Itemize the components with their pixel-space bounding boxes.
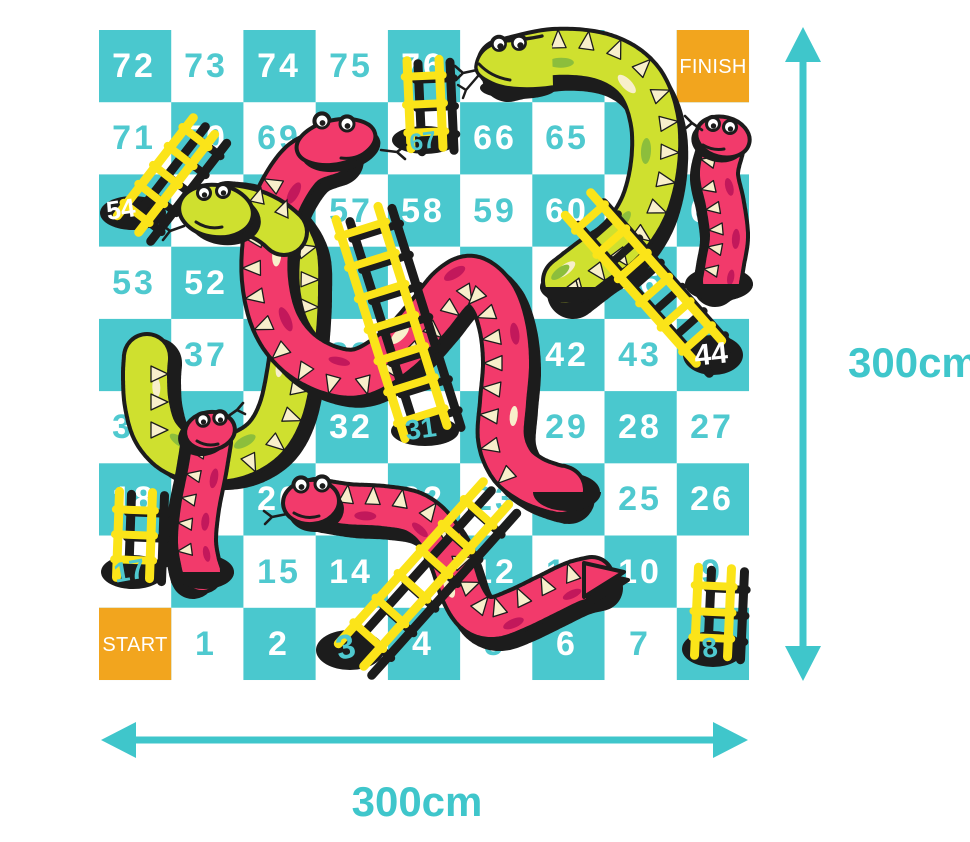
svg-text:54: 54: [104, 192, 137, 226]
svg-text:27: 27: [690, 408, 734, 446]
svg-text:28: 28: [618, 408, 662, 446]
svg-text:44: 44: [693, 336, 730, 372]
svg-text:25: 25: [618, 480, 662, 518]
svg-text:73: 73: [184, 47, 228, 85]
svg-text:14: 14: [329, 553, 373, 591]
svg-text:29: 29: [545, 408, 589, 446]
svg-text:2: 2: [268, 625, 290, 663]
svg-text:74: 74: [257, 47, 301, 85]
svg-text:15: 15: [257, 553, 301, 591]
svg-text:300cm: 300cm: [848, 339, 970, 386]
svg-text:67: 67: [408, 126, 438, 156]
svg-text:17: 17: [111, 553, 147, 589]
svg-text:7: 7: [629, 625, 651, 663]
svg-text:65: 65: [545, 119, 589, 157]
svg-text:58: 58: [401, 192, 445, 230]
svg-text:FINISH: FINISH: [679, 56, 746, 78]
svg-text:53: 53: [112, 264, 156, 302]
svg-text:71: 71: [112, 119, 156, 157]
svg-text:31: 31: [403, 411, 438, 446]
svg-text:1: 1: [195, 625, 217, 663]
svg-text:6: 6: [556, 625, 578, 663]
svg-text:START: START: [102, 634, 167, 656]
svg-text:52: 52: [184, 264, 228, 302]
svg-text:42: 42: [545, 336, 589, 374]
svg-text:300cm: 300cm: [352, 778, 483, 825]
svg-text:43: 43: [618, 336, 662, 374]
svg-text:32: 32: [329, 408, 373, 446]
svg-text:59: 59: [473, 192, 517, 230]
svg-text:66: 66: [473, 119, 517, 157]
svg-text:26: 26: [690, 480, 734, 518]
svg-text:37: 37: [184, 336, 228, 374]
svg-text:72: 72: [112, 47, 156, 85]
svg-text:75: 75: [329, 47, 373, 85]
